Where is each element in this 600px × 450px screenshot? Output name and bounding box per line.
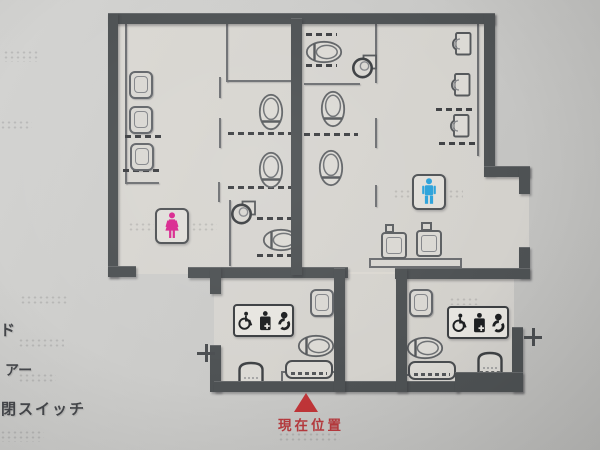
- braille-dots: [18, 338, 64, 348]
- toilet-icon: [305, 40, 343, 64]
- mop-sink-icon: [230, 200, 257, 227]
- braille-dots: [20, 295, 68, 305]
- mens-room-sign: [412, 174, 446, 210]
- multipurpose-room-sign-left: [233, 304, 294, 337]
- toilet-icon: [258, 93, 284, 131]
- partition-line: [125, 24, 127, 184]
- braille-dots: [393, 189, 412, 199]
- legend-label-fragment: アー: [5, 360, 32, 380]
- changing-bench-icon: [285, 360, 333, 379]
- door-dash-line: [228, 132, 292, 135]
- door-dash-line: [304, 133, 358, 136]
- womens-room-sign: [155, 208, 189, 244]
- current-location-label: 現在位置: [266, 414, 356, 434]
- partition-line: [226, 22, 228, 82]
- sink-icon: [416, 230, 442, 257]
- urinal-icon: [446, 71, 473, 99]
- wheelchair-icon: [449, 312, 469, 334]
- wall: [210, 267, 221, 294]
- baby-icon: [276, 310, 292, 332]
- partition-line: [218, 182, 220, 202]
- sink-icon: [130, 143, 154, 171]
- wall: [519, 166, 530, 194]
- sink-icon: [409, 289, 433, 317]
- partition-line: [304, 83, 360, 85]
- current-location-triangle-icon: [294, 393, 318, 412]
- sink-basin: [134, 111, 148, 128]
- partition-line: [375, 185, 377, 207]
- sink-basin: [135, 148, 149, 165]
- door-dash-line: [306, 33, 337, 36]
- door-dash-line: [436, 108, 474, 111]
- toilet-icon: [320, 90, 346, 128]
- toilet-icon: [297, 334, 335, 358]
- changing-bench-icon: [408, 361, 456, 380]
- faucet-icon: [385, 224, 394, 233]
- wheelchair-icon: [235, 310, 255, 332]
- wall: [108, 13, 118, 277]
- woman-icon: [162, 212, 182, 240]
- toilet-icon: [258, 151, 284, 189]
- wall: [484, 13, 495, 175]
- wall: [291, 18, 302, 275]
- braille-dots: [0, 120, 32, 130]
- partition-line: [477, 24, 479, 156]
- braille-dots: [191, 222, 217, 233]
- sink-basin: [386, 237, 402, 254]
- sink-basin: [134, 76, 148, 93]
- tactile-restroom-floor-map: 現在位置 ド アー 開閉スイッチ: [0, 0, 600, 450]
- door-dash-line: [125, 135, 161, 138]
- partition-line: [219, 118, 221, 148]
- urinal-icon: [445, 112, 472, 140]
- legend-label-fragment: ド: [0, 319, 15, 340]
- door-dash-line: [306, 64, 337, 67]
- sink-icon: [129, 71, 153, 99]
- toilet-icon: [318, 149, 344, 187]
- ostomate-icon: [472, 312, 487, 334]
- partition-line: [226, 80, 292, 82]
- multipurpose-room-sign-right: [447, 306, 509, 339]
- wall: [108, 266, 136, 277]
- sink-icon: [310, 289, 334, 317]
- wall: [395, 268, 530, 279]
- door-switch-plus-icon: [524, 328, 542, 346]
- braille-dots: [128, 222, 154, 233]
- sink-icon: [129, 106, 153, 134]
- door-switch-plus-icon: [197, 344, 215, 362]
- partition-line: [375, 118, 377, 148]
- sink-counter: [369, 258, 462, 268]
- wall: [334, 268, 345, 392]
- sink-basin: [421, 235, 437, 252]
- door-dash-line: [439, 142, 476, 145]
- urinal-icon: [447, 30, 474, 58]
- sink-icon: [381, 232, 407, 259]
- sink-basin: [414, 294, 428, 311]
- braille-dots: [449, 297, 479, 305]
- faucet-icon: [421, 222, 432, 231]
- braille-dots: [448, 189, 463, 199]
- partition-line: [125, 182, 159, 184]
- braille-dots: [3, 50, 39, 62]
- wall: [455, 372, 523, 392]
- sink-basin: [315, 294, 329, 311]
- ostomate-icon: [258, 310, 273, 332]
- braille-dots: [0, 430, 44, 442]
- baby-icon: [490, 312, 507, 334]
- mop-sink-icon: [351, 54, 378, 81]
- wall: [396, 268, 407, 392]
- toilet-icon: [406, 336, 444, 360]
- legend-label-fragment: 開閉スイッチ: [0, 398, 86, 419]
- partition-line: [219, 77, 221, 98]
- man-icon: [419, 178, 439, 206]
